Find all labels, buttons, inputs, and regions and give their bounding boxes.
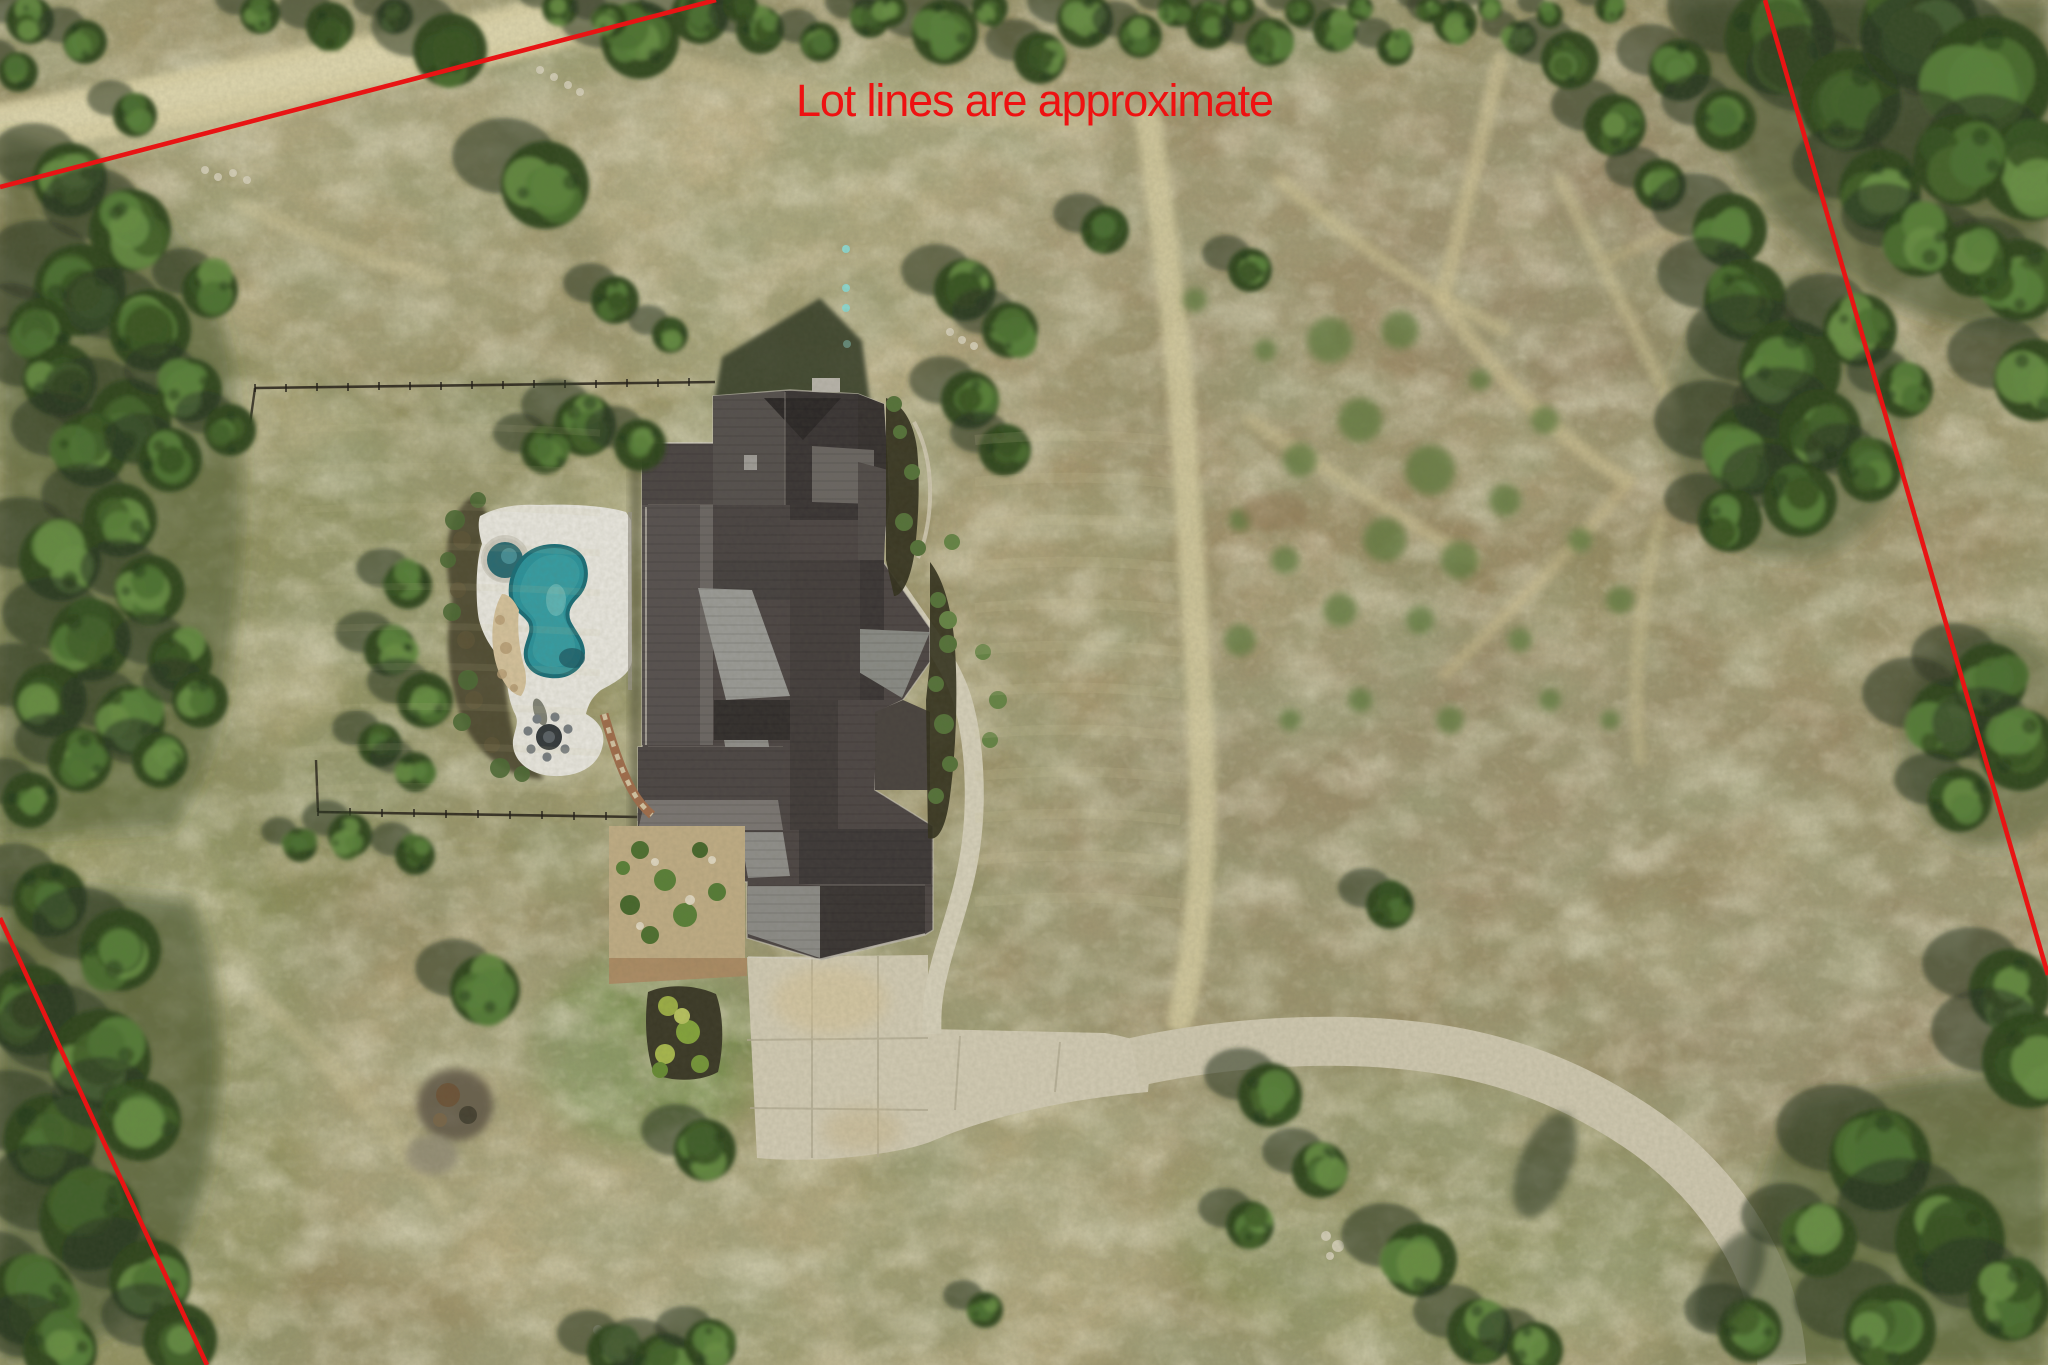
svg-text:Lot lines are approximate: Lot lines are approximate: [796, 75, 1274, 126]
